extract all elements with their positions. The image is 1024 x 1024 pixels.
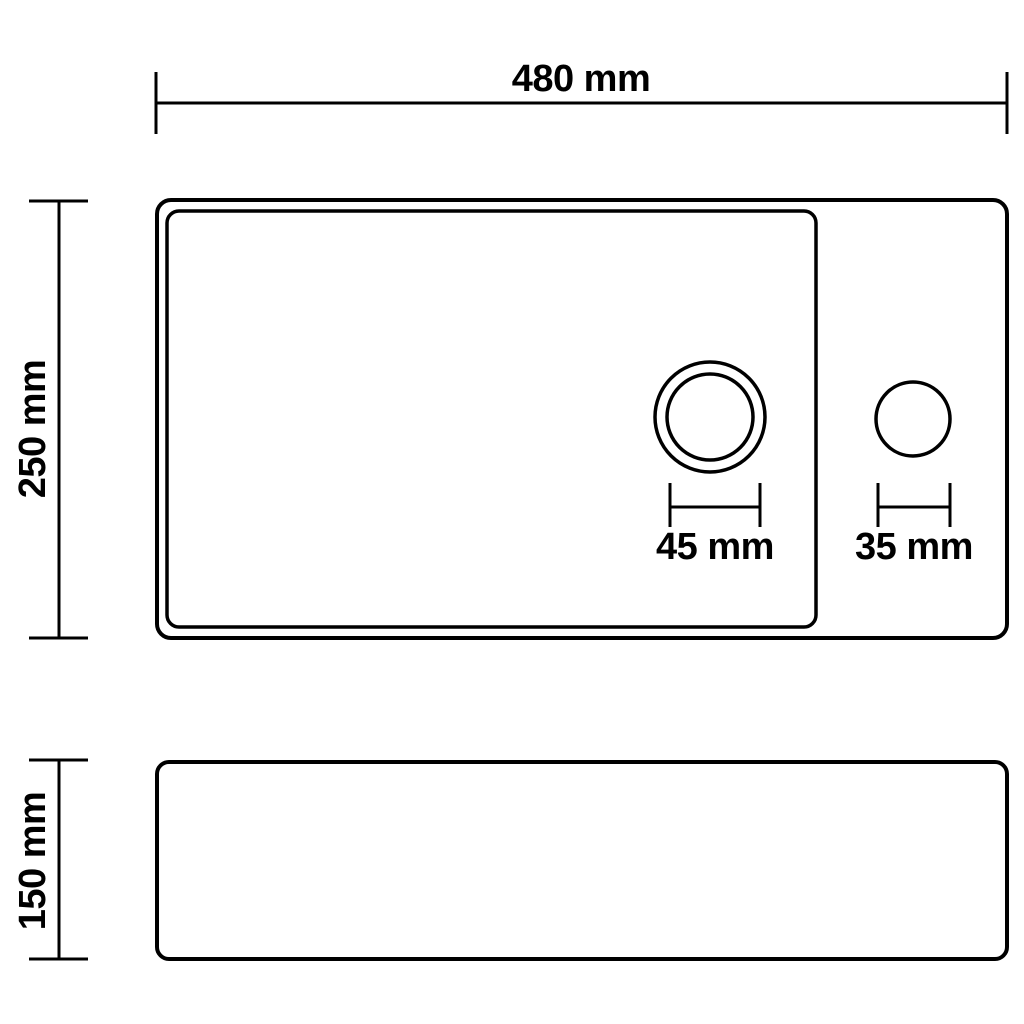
faucet-dimension: 35 mm	[855, 483, 973, 568]
height-dimension: 150 mm	[12, 760, 88, 959]
drain-dimension-label: 45 mm	[656, 526, 774, 568]
width-dimension: 480 mm	[156, 58, 1007, 134]
height-dimension-label: 150 mm	[12, 792, 54, 931]
drain-hole-outer-circle	[655, 362, 765, 472]
faucet-dimension-label: 35 mm	[855, 526, 973, 568]
faucet-hole-circle	[876, 382, 950, 456]
drain-hole-inner-circle	[667, 374, 753, 460]
top-view	[157, 200, 1007, 638]
side-view	[157, 762, 1007, 959]
width-dimension-label: 480 mm	[512, 58, 651, 100]
dimension-diagram: 480 mm 250 mm 45 mm	[0, 0, 1024, 1024]
top-view-outer-rim	[157, 200, 1007, 638]
side-view-outline	[157, 762, 1007, 959]
drain-dimension: 45 mm	[656, 483, 774, 568]
depth-dimension-label: 250 mm	[12, 360, 54, 499]
diagram-canvas: 480 mm 250 mm 45 mm	[0, 0, 1024, 1024]
depth-dimension: 250 mm	[12, 201, 88, 638]
